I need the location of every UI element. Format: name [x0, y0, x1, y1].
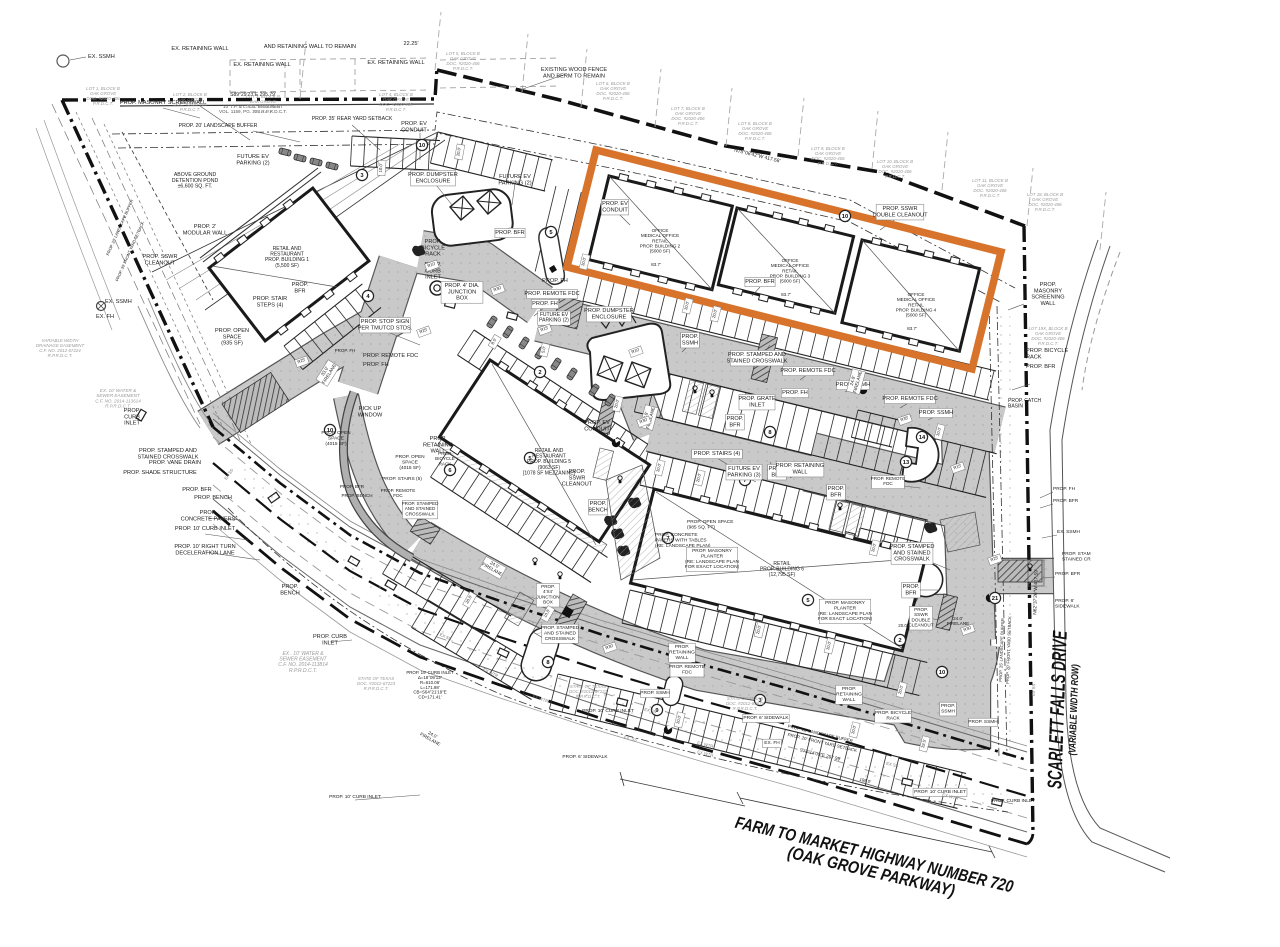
svg-text:PROP. FH: PROP. FH — [363, 362, 389, 368]
svg-text:PROP. DUMPSTERENCLOSURE: PROP. DUMPSTERENCLOSURE — [408, 172, 458, 184]
svg-text:EX SS: EX SS — [1031, 683, 1036, 696]
svg-text:PROP. BENCH: PROP. BENCH — [194, 495, 232, 501]
svg-text:PROP. BFR: PROP. BFR — [1053, 498, 1079, 504]
svg-text:PROP. 10' CURB INLET: PROP. 10' CURB INLET — [175, 526, 236, 532]
svg-text:PROP. STAIRS (4): PROP. STAIRS (4) — [694, 451, 741, 457]
svg-text:PROP. SSMH: PROP. SSMH — [640, 690, 670, 696]
svg-text:PROP. EVCONDUIT: PROP. EVCONDUIT — [584, 420, 610, 432]
svg-text:PROP. STAMPEDAND STAINEDCROSSW: PROP. STAMPEDAND STAINEDCROSSWALK — [890, 544, 935, 563]
svg-text:EX. RETAINING WALL: EX. RETAINING WALL — [171, 46, 228, 52]
svg-text:PROP. SHADE STRUCTURE: PROP. SHADE STRUCTURE — [123, 470, 197, 476]
svg-text:10: 10 — [842, 214, 848, 220]
svg-text:PROP. 10' CURB INLET: PROP. 10' CURB INLET — [914, 789, 966, 795]
svg-text:14: 14 — [919, 435, 926, 441]
svg-text:PROP.BENCH: PROP.BENCH — [280, 584, 300, 596]
svg-text:PROP. STAMPEDAND STAINEDCROSSW: PROP. STAMPEDAND STAINEDCROSSWALK — [402, 501, 440, 516]
svg-text:10: 10 — [419, 143, 425, 149]
svg-text:FUTURE EVPARKING (2): FUTURE EVPARKING (2) — [236, 154, 269, 166]
svg-text:PROP.SSMH: PROP.SSMH — [682, 334, 699, 346]
svg-text:EX. RETAINING WALL: EX. RETAINING WALL — [233, 62, 290, 68]
svg-text:EXISTING WOOD FENCEAND BERM TO: EXISTING WOOD FENCEAND BERM TO REMAIN — [541, 67, 607, 79]
svg-text:PROP. 6' SIDEWALK: PROP. 6' SIDEWALK — [562, 754, 608, 760]
svg-text:PROP. DUMPSTERENCLOSURE: PROP. DUMPSTERENCLOSURE — [584, 308, 634, 320]
svg-text:EX. SSMH: EX. SSMH — [105, 299, 132, 305]
svg-text:PROP. STAIRS (5): PROP. STAIRS (5) — [382, 476, 422, 482]
svg-text:PROP. FH: PROP. FH — [782, 390, 808, 396]
svg-text:PROP. FH: PROP. FH — [335, 348, 356, 353]
svg-text:PROP. CURB INLET: PROP. CURB INLET — [991, 798, 1035, 804]
svg-text:PROP. 35' REAR YARD SETBACK: PROP. 35' REAR YARD SETBACK — [312, 116, 393, 122]
svg-text:EX. SSMH: EX. SSMH — [88, 54, 115, 60]
svg-text:PROP. REMOTE FDC: PROP. REMOTE FDC — [524, 291, 579, 297]
svg-text:PROP. EVCONDUIT: PROP. EVCONDUIT — [401, 121, 427, 133]
svg-text:FUTURE EVPARKING (2): FUTURE EVPARKING (2) — [539, 312, 569, 324]
svg-text:PROP. BFR: PROP. BFR — [182, 487, 211, 493]
svg-text:EX. FH: EX. FH — [96, 314, 114, 320]
svg-text:PROP. VANE DRAIN: PROP. VANE DRAIN — [149, 460, 201, 466]
svg-text:PROP.SSMH: PROP.SSMH — [941, 703, 956, 714]
svg-text:FUTURE EVPARKING (2): FUTURE EVPARKING (2) — [498, 174, 531, 186]
svg-text:PROP.BENCH: PROP.BENCH — [588, 501, 608, 513]
svg-text:FUTURE EVPARKING (3): FUTURE EVPARKING (3) — [727, 466, 760, 478]
svg-text:83.7': 83.7' — [781, 292, 791, 297]
svg-text:PROP. 10' CURB INLET: PROP. 10' CURB INLET — [329, 794, 381, 800]
svg-text:PROP. BFR: PROP. BFR — [745, 279, 774, 285]
svg-text:PROP. MASONRYPLANTER(RE: LANDS: PROP. MASONRYPLANTER(RE: LANDSCAPE PLANF… — [685, 548, 740, 570]
svg-text:PROP. STAMSTAINED CR: PROP. STAMSTAINED CR — [1062, 551, 1091, 562]
svg-text:PROP.CURBINLET: PROP.CURBINLET — [124, 408, 141, 427]
svg-text:20.0': 20.0' — [898, 623, 908, 628]
svg-text:PROP. STAIRSTEPS (4): PROP. STAIRSTEPS (4) — [253, 296, 287, 308]
svg-text:83.7': 83.7' — [651, 262, 661, 267]
svg-text:EX. FH: EX. FH — [764, 740, 780, 746]
svg-text:PROP. STAMPEDAND STAINEDCROSSW: PROP. STAMPEDAND STAINEDCROSSWALK — [541, 625, 580, 642]
svg-text:PROP. BFR: PROP. BFR — [1026, 364, 1055, 370]
svg-text:PROP. 20' LANDSCAPE BUFFER: PROP. 20' LANDSCAPE BUFFER — [179, 123, 258, 129]
svg-text:2: 2 — [538, 370, 541, 376]
svg-text:AND RETAINING WALL TO REMAIN: AND RETAINING WALL TO REMAIN — [264, 44, 356, 50]
svg-text:PROP. FH: PROP. FH — [532, 301, 558, 307]
svg-text:2: 2 — [898, 638, 901, 644]
svg-text:EX. RETAINING WALL: EX. RETAINING WALL — [367, 60, 424, 66]
svg-text:PROP. SSWRCLEANOUT: PROP. SSWRCLEANOUT — [142, 254, 177, 266]
svg-text:ABOVE GROUNDDETENTION POND±6,6: ABOVE GROUNDDETENTION POND±6,600 SQ. FT. — [172, 172, 219, 190]
svg-text:10: 10 — [939, 670, 945, 676]
svg-text:13: 13 — [903, 460, 910, 466]
svg-text:PROP. 10' CURB INLET: PROP. 10' CURB INLET — [582, 708, 634, 714]
svg-text:PROP. BFR: PROP. BFR — [340, 484, 365, 489]
svg-text:22.25': 22.25' — [403, 41, 418, 47]
svg-text:PROP. 6' SIDEWALK: PROP. 6' SIDEWALK — [743, 715, 789, 721]
svg-text:PROP. BENCH: PROP. BENCH — [341, 493, 372, 498]
svg-text:PROP. STAMPED ANDSTAINED CROSS: PROP. STAMPED ANDSTAINED CROSSWALK — [138, 448, 199, 460]
svg-text:PROP. REMOTE FDC: PROP. REMOTE FDC — [780, 368, 835, 374]
svg-text:PROP. 10' RIGHT TURNDECELERATI: PROP. 10' RIGHT TURNDECELERATION LANE — [174, 544, 235, 556]
svg-text:PROP. STOP SIGNPER TMUTCD STDS: PROP. STOP SIGNPER TMUTCD STDS. — [358, 319, 413, 331]
svg-text:PROP. SSMH: PROP. SSMH — [919, 410, 953, 416]
svg-text:EX. SSMH: EX. SSMH — [1057, 529, 1080, 535]
svg-text:PROP. REMOTE FDC: PROP. REMOTE FDC — [363, 353, 418, 359]
svg-text:PROP. SSMH: PROP. SSMH — [968, 719, 998, 725]
svg-text:PROP. STAMPED ANDSTAINED CROSS: PROP. STAMPED ANDSTAINED CROSSWALK — [727, 352, 788, 364]
svg-text:PICK UPWINDOW: PICK UPWINDOW — [358, 406, 383, 418]
svg-text:PROP. BFR: PROP. BFR — [1055, 571, 1081, 577]
svg-text:10.0': 10.0' — [378, 163, 384, 172]
svg-text:83.7': 83.7' — [907, 326, 917, 331]
svg-text:PROP. FH: PROP. FH — [542, 278, 568, 284]
svg-text:21: 21 — [992, 596, 999, 602]
svg-text:PROP. BFR: PROP. BFR — [495, 230, 524, 236]
svg-text:PROP. FH: PROP. FH — [1053, 486, 1076, 492]
svg-text:PROP. MASONRYPLANTER(RE: LANDS: PROP. MASONRYPLANTER(RE: LANDSCAPE PLANF… — [818, 600, 873, 622]
svg-text:PROP. REMOTE FDC: PROP. REMOTE FDC — [882, 396, 937, 402]
svg-text:PROP. EVCONDUIT: PROP. EVCONDUIT — [602, 201, 628, 213]
